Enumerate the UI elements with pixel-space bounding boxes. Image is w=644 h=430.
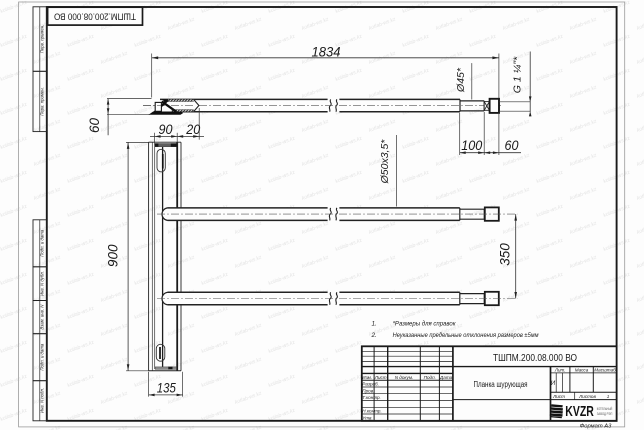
svg-text:Лит.: Лит. [554,367,566,372]
svg-text:Лист: Лист [552,394,565,399]
svg-text:900: 900 [106,244,121,267]
svg-text:100: 100 [461,138,482,153]
svg-text:ТШПМ.200.08.000 ВО: ТШПМ.200.08.000 ВО [54,11,136,22]
svg-text:Подп. и дата: Подп. и дата [40,229,45,257]
svg-text:350: 350 [498,243,513,266]
svg-text:Разраб.: Разраб. [362,382,379,387]
svg-text:1834: 1834 [312,45,341,60]
svg-text:G 1 ¼"*: G 1 ¼"* [512,56,524,93]
svg-text:ЗАВОД РЭП: ЗАВОД РЭП [597,411,613,416]
svg-text:90: 90 [159,122,173,137]
svg-text:Инв. N дубл.: Инв. N дубл. [40,271,45,296]
svg-text:Пров.: Пров. [362,388,374,393]
svg-text:1.: 1. [372,321,377,328]
svg-text:Утв.: Утв. [362,415,372,420]
svg-text:60: 60 [87,118,102,134]
svg-text:Подп. и дата: Подп. и дата [40,343,45,371]
svg-text:60: 60 [505,138,519,153]
svg-text:Перв. примен.: Перв. примен. [40,87,45,116]
svg-text:Инв. N подл.: Инв. N подл. [40,388,45,413]
svg-text:Формат А3: Формат А3 [580,423,612,429]
svg-text:ТШПМ.200.08.000 ВО: ТШПМ.200.08.000 ВО [493,352,577,364]
svg-text:Масштаб: Масштаб [594,367,616,372]
svg-text:Подп.: Подп. [424,375,436,380]
svg-text:Лист: Лист [374,375,387,380]
svg-text:Изм.: Изм. [362,375,372,380]
svg-text:Масса: Масса [575,367,589,372]
svg-text:20: 20 [185,122,200,137]
svg-text:KVZR: KVZR [565,404,594,420]
svg-text:Листов: Листов [578,394,596,399]
svg-text:*Размеры для справок: *Размеры для справок [393,320,457,328]
svg-text:1: 1 [607,394,610,399]
svg-text:Н.контр.: Н.контр. [362,409,381,414]
svg-text:135: 135 [157,380,176,395]
svg-text:N докум.: N докум. [395,375,414,380]
svg-text:2.: 2. [371,332,377,339]
svg-text:Ø45*: Ø45* [455,67,467,93]
svg-text:Дата: Дата [439,375,453,380]
svg-text:И: И [551,380,556,387]
svg-text:Ø50х3,5*: Ø50х3,5* [379,139,391,185]
svg-text:Т.контр.: Т.контр. [362,395,381,400]
svg-text:Взам. инв. N: Взам. инв. N [40,304,45,330]
svg-text:Планка шурующая: Планка шурующая [474,380,528,389]
svg-text:Перв. примен.: Перв. примен. [40,25,45,54]
svg-text:Неуказанные предельные отклоне: Неуказанные предельные отклонения размер… [393,331,540,339]
